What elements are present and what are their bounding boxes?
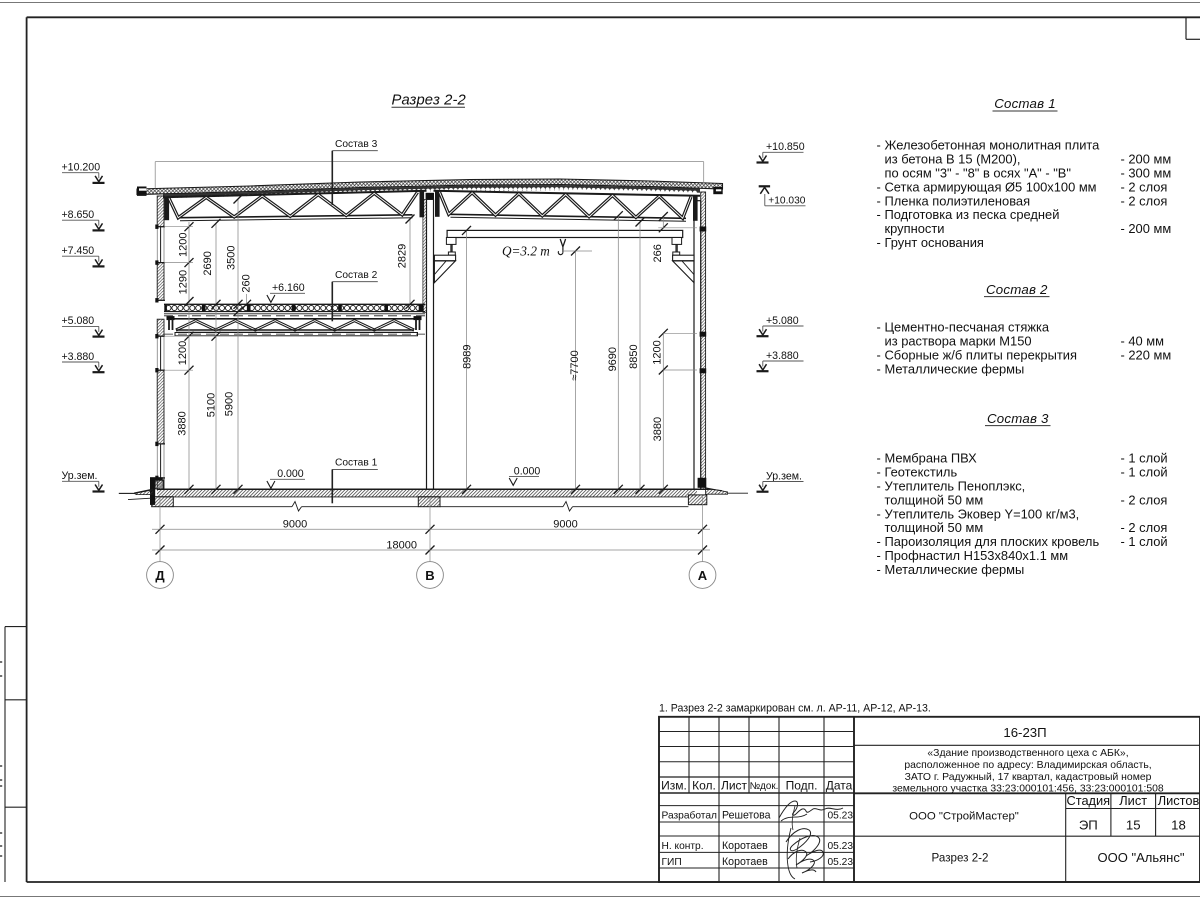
svg-text:Состав 3: Состав 3 bbox=[987, 411, 1049, 426]
svg-text:15: 15 bbox=[1126, 818, 1141, 833]
svg-text:толщиной 50 мм: толщиной 50 мм bbox=[885, 520, 984, 535]
svg-text:Геотекстиль: Геотекстиль bbox=[885, 465, 958, 480]
svg-text:Лист: Лист bbox=[721, 779, 748, 793]
svg-text:-: - bbox=[877, 479, 881, 494]
svg-text:0.000: 0.000 bbox=[277, 468, 304, 480]
svg-text:- 220 мм: - 220 мм bbox=[1121, 348, 1172, 363]
svg-text:по осям "3" - "8" в осях "А" -: по осям "3" - "8" в осях "А" - "В" bbox=[885, 166, 1072, 181]
svg-text:2690: 2690 bbox=[202, 251, 214, 275]
svg-text:В: В bbox=[425, 568, 434, 583]
svg-text:-: - bbox=[877, 320, 881, 335]
svg-text:-: - bbox=[877, 348, 881, 363]
svg-text:3880: 3880 bbox=[652, 417, 664, 441]
svg-text:- 40 мм: - 40 мм bbox=[1121, 334, 1165, 349]
svg-text:-: - bbox=[877, 193, 881, 208]
svg-text:- 2 слоя: - 2 слоя bbox=[1121, 193, 1168, 208]
svg-text:из бетона В 15 (М200),: из бетона В 15 (М200), bbox=[885, 152, 1021, 167]
svg-text:-: - bbox=[877, 361, 881, 376]
svg-text:Пленка полиэтиленовая: Пленка полиэтиленовая bbox=[885, 193, 1031, 208]
svg-text:Состав 1: Состав 1 bbox=[994, 96, 1056, 111]
svg-text:Разрез 2-2: Разрез 2-2 bbox=[392, 93, 467, 109]
svg-text:8989: 8989 bbox=[462, 344, 474, 368]
svg-text:+5.080: +5.080 bbox=[766, 315, 799, 327]
svg-text:9000: 9000 bbox=[283, 519, 307, 531]
svg-text:Решетова: Решетова bbox=[722, 810, 771, 822]
svg-text:-: - bbox=[877, 235, 881, 250]
svg-text:Разрез 2-2: Разрез 2-2 bbox=[932, 852, 989, 865]
svg-text:Стадия: Стадия bbox=[1066, 793, 1110, 808]
svg-text:5100: 5100 bbox=[206, 393, 218, 417]
svg-text:Грунт основания: Грунт основания bbox=[885, 235, 984, 250]
svg-text:5900: 5900 bbox=[224, 392, 236, 416]
svg-text:3880: 3880 bbox=[177, 411, 189, 435]
svg-text:-: - bbox=[877, 548, 881, 563]
svg-text:Утеплитель Пеноплэкс,: Утеплитель Пеноплэкс, bbox=[885, 479, 1026, 494]
svg-text:+7.450: +7.450 bbox=[62, 245, 95, 257]
svg-text:+6.160: +6.160 bbox=[272, 282, 305, 294]
svg-text:-: - bbox=[877, 179, 881, 194]
svg-text:1200: 1200 bbox=[652, 340, 664, 364]
svg-text:Профнастил Н153х840х1.1 мм: Профнастил Н153х840х1.1 мм bbox=[885, 548, 1069, 563]
svg-text:- 2 слоя: - 2 слоя bbox=[1121, 179, 1168, 194]
svg-text:≈7700: ≈7700 bbox=[569, 350, 581, 381]
svg-text:Ур.зем.: Ур.зем. bbox=[62, 470, 98, 482]
svg-text:05.23: 05.23 bbox=[828, 841, 854, 852]
svg-text:+10.850: +10.850 bbox=[766, 141, 805, 153]
svg-text:ЗАТО г. Радужный, 17 квартал,: ЗАТО г. Радужный, 17 квартал, кадастровы… bbox=[905, 772, 1152, 783]
svg-text:05.23: 05.23 bbox=[828, 857, 854, 868]
svg-text:1290: 1290 bbox=[178, 270, 190, 294]
svg-text:Коротаев: Коротаев bbox=[722, 840, 768, 852]
svg-text:ООО "Альянс": ООО "Альянс" bbox=[1098, 850, 1185, 865]
svg-text:Железобетонная монолитная пли: Железобетонная монолитная плита bbox=[885, 138, 1101, 153]
svg-text:ООО "СтройМастер": ООО "СтройМастер" bbox=[909, 811, 1019, 823]
svg-text:Состав 2: Состав 2 bbox=[335, 270, 378, 281]
svg-text:Подготовка из песка средней: Подготовка из песка средней bbox=[885, 207, 1060, 222]
svg-text:- 200 мм: - 200 мм bbox=[1121, 152, 1172, 167]
svg-text:1200: 1200 bbox=[177, 341, 189, 365]
svg-text:Лист: Лист bbox=[1119, 793, 1147, 808]
svg-text:16-23П: 16-23П bbox=[1003, 725, 1046, 740]
svg-text:расположенное по адресу: Влади: расположенное по адресу: Владимирская об… bbox=[904, 759, 1151, 771]
svg-text:- 2 слоя: - 2 слоя bbox=[1121, 520, 1168, 535]
svg-text:Состав 2: Состав 2 bbox=[986, 282, 1048, 297]
svg-text:- 1 слой: - 1 слой bbox=[1121, 451, 1168, 466]
svg-text:Д: Д bbox=[155, 568, 165, 583]
svg-text:- 200 мм: - 200 мм bbox=[1121, 221, 1172, 236]
svg-text:+10.200: +10.200 bbox=[62, 162, 101, 174]
svg-text:1. Разрез 2-2 замаркирован см.: 1. Разрез 2-2 замаркирован см. л. АР-11,… bbox=[659, 703, 931, 715]
svg-text:Ур.зем.: Ур.зем. bbox=[766, 470, 802, 482]
svg-text:Утеплитель Эковер Y=100 кг/м3,: Утеплитель Эковер Y=100 кг/м3, bbox=[885, 506, 1080, 521]
svg-text:Сетка армирующая Ø5 100х100 мм: Сетка армирующая Ø5 100х100 мм bbox=[885, 179, 1097, 194]
svg-text:Дата: Дата bbox=[826, 779, 853, 793]
svg-text:260: 260 bbox=[241, 274, 253, 292]
svg-text:+3.880: +3.880 bbox=[62, 351, 95, 363]
svg-text:ЭП: ЭП bbox=[1079, 818, 1098, 833]
svg-text:Сборные ж/б плиты перекрытия: Сборные ж/б плиты перекрытия bbox=[885, 348, 1077, 363]
svg-text:+3.880: +3.880 bbox=[766, 350, 799, 362]
svg-text:-: - bbox=[877, 207, 881, 222]
svg-text:-: - bbox=[877, 138, 881, 153]
svg-text:Изм.: Изм. bbox=[661, 779, 687, 793]
svg-text:Металлические фермы: Металлические фермы bbox=[885, 562, 1025, 577]
svg-text:Подп.: Подп. bbox=[786, 779, 818, 793]
svg-text:-: - bbox=[877, 506, 881, 521]
svg-text:9690: 9690 bbox=[607, 347, 619, 371]
svg-text:-: - bbox=[877, 465, 881, 480]
svg-text:Листов: Листов bbox=[1158, 793, 1200, 808]
svg-text:Состав 1: Состав 1 bbox=[335, 458, 378, 469]
svg-text:№док.: №док. bbox=[750, 781, 779, 792]
svg-text:05.23: 05.23 bbox=[828, 811, 854, 822]
svg-text:- 1 слой: - 1 слой bbox=[1121, 534, 1168, 549]
svg-text:-: - bbox=[877, 562, 881, 577]
svg-text:Цементно-песчаная стяжка: Цементно-песчаная стяжка bbox=[885, 320, 1050, 335]
svg-text:9000: 9000 bbox=[553, 519, 577, 531]
svg-text:Пароизоляция для плоских крове: Пароизоляция для плоских кровель bbox=[885, 534, 1100, 549]
svg-text:3500: 3500 bbox=[226, 246, 238, 270]
svg-text:ГИП: ГИП bbox=[662, 857, 682, 868]
svg-text:Кол.: Кол. bbox=[692, 779, 716, 793]
svg-text:-: - bbox=[877, 451, 881, 466]
svg-text:8850: 8850 bbox=[628, 344, 640, 368]
svg-text:266: 266 bbox=[652, 244, 664, 262]
svg-text:-: - bbox=[877, 534, 881, 549]
svg-text:- 2 слоя: - 2 слоя bbox=[1121, 492, 1168, 507]
svg-text:Н. контр.: Н. контр. bbox=[662, 841, 704, 852]
svg-text:Металлические фермы: Металлические фермы bbox=[885, 361, 1025, 376]
svg-text:из раствора марки М150: из раствора марки М150 bbox=[885, 334, 1032, 349]
svg-text:А: А bbox=[698, 568, 708, 583]
svg-text:2829: 2829 bbox=[397, 244, 409, 268]
svg-text:- 300 мм: - 300 мм bbox=[1121, 166, 1172, 181]
svg-text:18: 18 bbox=[1171, 818, 1186, 833]
svg-text:толщиной 50 мм: толщиной 50 мм bbox=[885, 492, 984, 507]
svg-text:18000: 18000 bbox=[386, 539, 417, 551]
svg-text:Разработал: Разработал bbox=[662, 810, 718, 822]
svg-text:Коротаев: Коротаев bbox=[722, 856, 768, 868]
svg-text:0.000: 0.000 bbox=[514, 465, 541, 477]
svg-text:Состав 3: Состав 3 bbox=[335, 139, 378, 150]
svg-text:крупности: крупности bbox=[885, 221, 945, 236]
svg-text:1200: 1200 bbox=[178, 233, 190, 257]
svg-text:Q=3.2 m: Q=3.2 m bbox=[502, 244, 550, 259]
svg-text:Мембрана ПВХ: Мембрана ПВХ bbox=[885, 451, 978, 466]
svg-text:- 1 слой: - 1 слой bbox=[1121, 465, 1168, 480]
svg-text:«Здание производственного цеха: «Здание производственного цеха с АБК», bbox=[927, 748, 1128, 759]
svg-text:+10.030: +10.030 bbox=[768, 196, 805, 207]
svg-text:+5.080: +5.080 bbox=[62, 315, 95, 327]
svg-text:+8.650: +8.650 bbox=[62, 209, 95, 221]
